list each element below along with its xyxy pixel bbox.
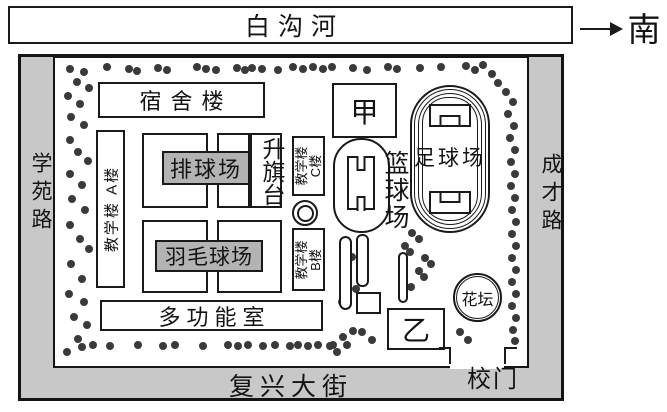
tree-icon — [103, 63, 111, 71]
teaching-building-c: 教学楼 C楼 — [292, 136, 325, 196]
tree-icon — [363, 66, 371, 74]
tree-icon — [159, 342, 167, 350]
football-field-label: 足球场 — [412, 145, 488, 169]
tree-icon — [234, 342, 242, 350]
jia-building: 甲 — [332, 83, 397, 138]
tree-icon — [416, 64, 424, 72]
tree-icon — [80, 121, 88, 129]
tree-icon — [89, 341, 97, 349]
tree-icon — [81, 206, 89, 214]
tree-icon — [125, 65, 133, 73]
tree-icon — [512, 266, 520, 274]
tree-icon — [274, 66, 282, 74]
tree-icon — [70, 313, 78, 321]
tree-icon — [504, 110, 512, 118]
tree-icon — [74, 148, 82, 156]
tree-icon — [85, 245, 93, 253]
basketball-court-label: 篮球场 — [377, 150, 413, 232]
tree-icon — [368, 336, 376, 344]
tree-icon — [339, 333, 347, 341]
tree-icon — [193, 63, 201, 71]
tree-icon — [415, 235, 423, 243]
tree-icon — [464, 336, 472, 344]
tree-icon — [106, 342, 114, 350]
tree-icon — [76, 235, 84, 243]
goal-box-bottom-icon — [429, 191, 471, 214]
road-bottom-label: 复兴大街 — [151, 371, 431, 399]
tree-icon — [66, 136, 74, 144]
tree-icon — [83, 321, 91, 329]
basketball-key-icon — [347, 156, 375, 210]
tree-icon — [163, 66, 171, 74]
tree-icon — [65, 290, 73, 298]
tree-icon — [133, 67, 141, 75]
tree-icon — [85, 84, 93, 92]
tree-icon — [66, 221, 74, 229]
tree-icon — [509, 98, 517, 106]
tree-icon — [248, 64, 256, 72]
tree-icon — [74, 335, 82, 343]
tree-icon — [66, 170, 74, 178]
campus-map: 白沟河 南 学苑路 成才路 复兴大街 宿舍楼 教学楼 A楼 升旗台 排球场 羽毛… — [0, 0, 667, 412]
tree-icon — [508, 230, 516, 238]
tree-icon — [508, 278, 516, 286]
tree-icon — [512, 218, 520, 226]
tree-icon — [134, 341, 142, 349]
flag-platform-box: 升旗台 — [250, 133, 282, 208]
river-label: 白沟河 — [237, 7, 344, 43]
flowerbed-label: 花坛 — [461, 286, 493, 310]
tree-icon — [299, 65, 307, 73]
tree-icon — [84, 157, 92, 165]
tree-icon — [68, 195, 76, 203]
tree-icon — [314, 341, 322, 349]
tree-icon — [384, 63, 392, 71]
tree-icon — [73, 78, 81, 86]
tree-icon — [512, 242, 520, 250]
south-label: 南 — [622, 8, 666, 46]
tree-icon — [212, 66, 220, 74]
tree-icon — [258, 65, 266, 73]
tree-icon — [67, 260, 75, 268]
tree-icon — [319, 65, 327, 73]
teaching-building-a: 教学楼 A楼 — [96, 130, 125, 288]
tree-icon — [456, 328, 464, 336]
tree-icon — [494, 79, 502, 87]
flowerbed: 花坛 — [453, 273, 502, 322]
gate-post-left-icon — [439, 347, 451, 364]
tree-icon — [407, 283, 415, 291]
tree-icon — [358, 328, 366, 336]
tree-icon — [509, 326, 517, 334]
gate-label: 校门 — [462, 361, 524, 391]
tree-icon — [66, 65, 74, 73]
tree-icon — [271, 341, 279, 349]
tree-icon — [80, 298, 88, 306]
tree-icon — [78, 181, 86, 189]
hedge-icon — [356, 234, 369, 287]
teaching-building-c-label: 教学楼 C楼 — [295, 146, 323, 185]
tree-icon — [76, 100, 84, 108]
tree-icon — [329, 341, 337, 349]
tree-icon — [512, 314, 520, 322]
tree-icon — [286, 342, 294, 350]
tree-icon — [309, 63, 317, 71]
tree-icon — [259, 342, 267, 350]
teaching-building-b: 教学楼 B楼 — [292, 228, 325, 291]
tree-icon — [64, 92, 72, 100]
tree-icon — [507, 182, 515, 190]
tree-icon — [479, 61, 487, 69]
flagpole-circle-icon — [292, 200, 318, 226]
tree-icon — [78, 275, 86, 283]
tree-icon — [349, 327, 357, 335]
flag-platform-label: 升旗台 — [255, 137, 289, 206]
river-band: 白沟河 — [8, 6, 573, 44]
tree-icon — [507, 158, 515, 166]
tree-icon — [78, 343, 86, 351]
tree-icon — [67, 113, 75, 121]
tree-icon — [508, 206, 516, 214]
tree-icon — [462, 62, 470, 70]
tree-icon — [511, 146, 519, 154]
yi-building: 乙 — [387, 308, 445, 350]
tree-icon — [233, 64, 241, 72]
tree-icon — [294, 341, 302, 349]
road-left-label: 学苑路 — [25, 152, 55, 252]
tree-icon — [471, 66, 479, 74]
badminton-court-label: 羽毛球场 — [155, 240, 263, 272]
goal-box-top-icon — [429, 104, 471, 127]
tree-icon — [63, 348, 71, 356]
road-right-label: 成才路 — [535, 153, 565, 253]
tree-icon — [502, 88, 510, 96]
tree-icon — [224, 341, 232, 349]
tree-icon — [343, 341, 351, 349]
volleyball-court-label: 排球场 — [162, 151, 250, 185]
tree-icon — [427, 260, 435, 268]
tree-icon — [333, 348, 341, 356]
tree-icon — [511, 194, 519, 202]
tree-icon — [393, 65, 401, 73]
tree-icon — [510, 122, 518, 130]
tree-icon — [511, 170, 519, 178]
teaching-building-a-label: 教学楼 A楼 — [100, 166, 121, 252]
tree-icon — [508, 302, 516, 310]
hedge-icon — [339, 236, 352, 310]
tree-icon — [512, 290, 520, 298]
tree-icon — [506, 134, 514, 142]
multifunction-room: 多功能室 — [100, 300, 323, 331]
tree-icon — [202, 65, 210, 73]
small-structure-box — [356, 292, 381, 314]
tree-icon — [304, 342, 312, 350]
teaching-building-b-label: 教学楼 B楼 — [295, 240, 323, 279]
tree-icon — [488, 70, 496, 78]
tree-icon — [328, 63, 336, 71]
tree-icon — [349, 64, 357, 72]
tree-icon — [437, 63, 445, 71]
tree-icon — [199, 342, 207, 350]
hedge-icon — [398, 252, 408, 303]
tree-icon — [420, 273, 428, 281]
dormitory-building: 宿舍楼 — [98, 82, 265, 118]
tree-icon — [511, 337, 519, 345]
tree-icon — [80, 68, 88, 76]
tree-icon — [154, 64, 162, 72]
tree-icon — [244, 341, 252, 349]
tree-icon — [171, 341, 179, 349]
tree-icon — [508, 254, 516, 262]
tree-icon — [289, 63, 297, 71]
south-arrow-icon — [580, 28, 612, 31]
